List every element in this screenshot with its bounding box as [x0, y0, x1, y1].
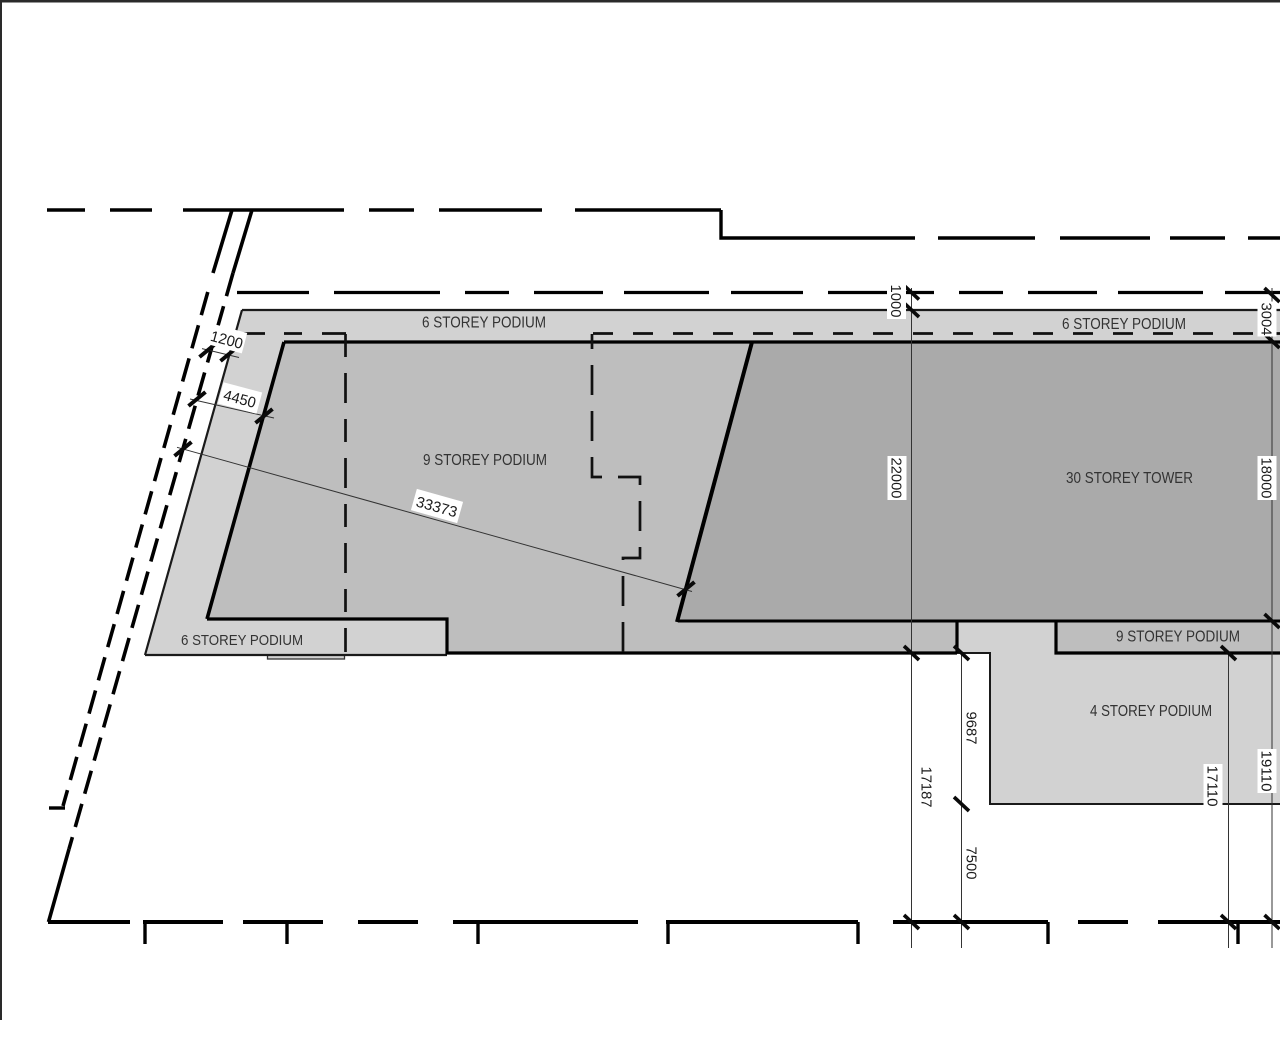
svg-text:7500: 7500 [963, 847, 980, 880]
svg-text:17110: 17110 [1204, 766, 1221, 807]
svg-text:6 STOREY PODIUM: 6 STOREY PODIUM [181, 632, 303, 649]
svg-text:6 STOREY PODIUM: 6 STOREY PODIUM [422, 315, 546, 332]
svg-text:9687: 9687 [963, 712, 980, 745]
svg-text:9 STOREY PODIUM: 9 STOREY PODIUM [1116, 629, 1240, 646]
svg-text:19110: 19110 [1258, 751, 1275, 792]
svg-text:17187: 17187 [918, 767, 935, 808]
svg-text:4 STOREY PODIUM: 4 STOREY PODIUM [1090, 703, 1212, 720]
svg-text:30 STOREY TOWER: 30 STOREY TOWER [1066, 470, 1193, 487]
svg-text:1000: 1000 [887, 285, 904, 318]
svg-text:22000: 22000 [888, 458, 905, 499]
svg-text:3004: 3004 [1258, 303, 1275, 336]
svg-text:6 STOREY PODIUM: 6 STOREY PODIUM [1062, 316, 1186, 333]
svg-text:9 STOREY PODIUM: 9 STOREY PODIUM [423, 452, 547, 469]
svg-text:18000: 18000 [1258, 458, 1275, 499]
